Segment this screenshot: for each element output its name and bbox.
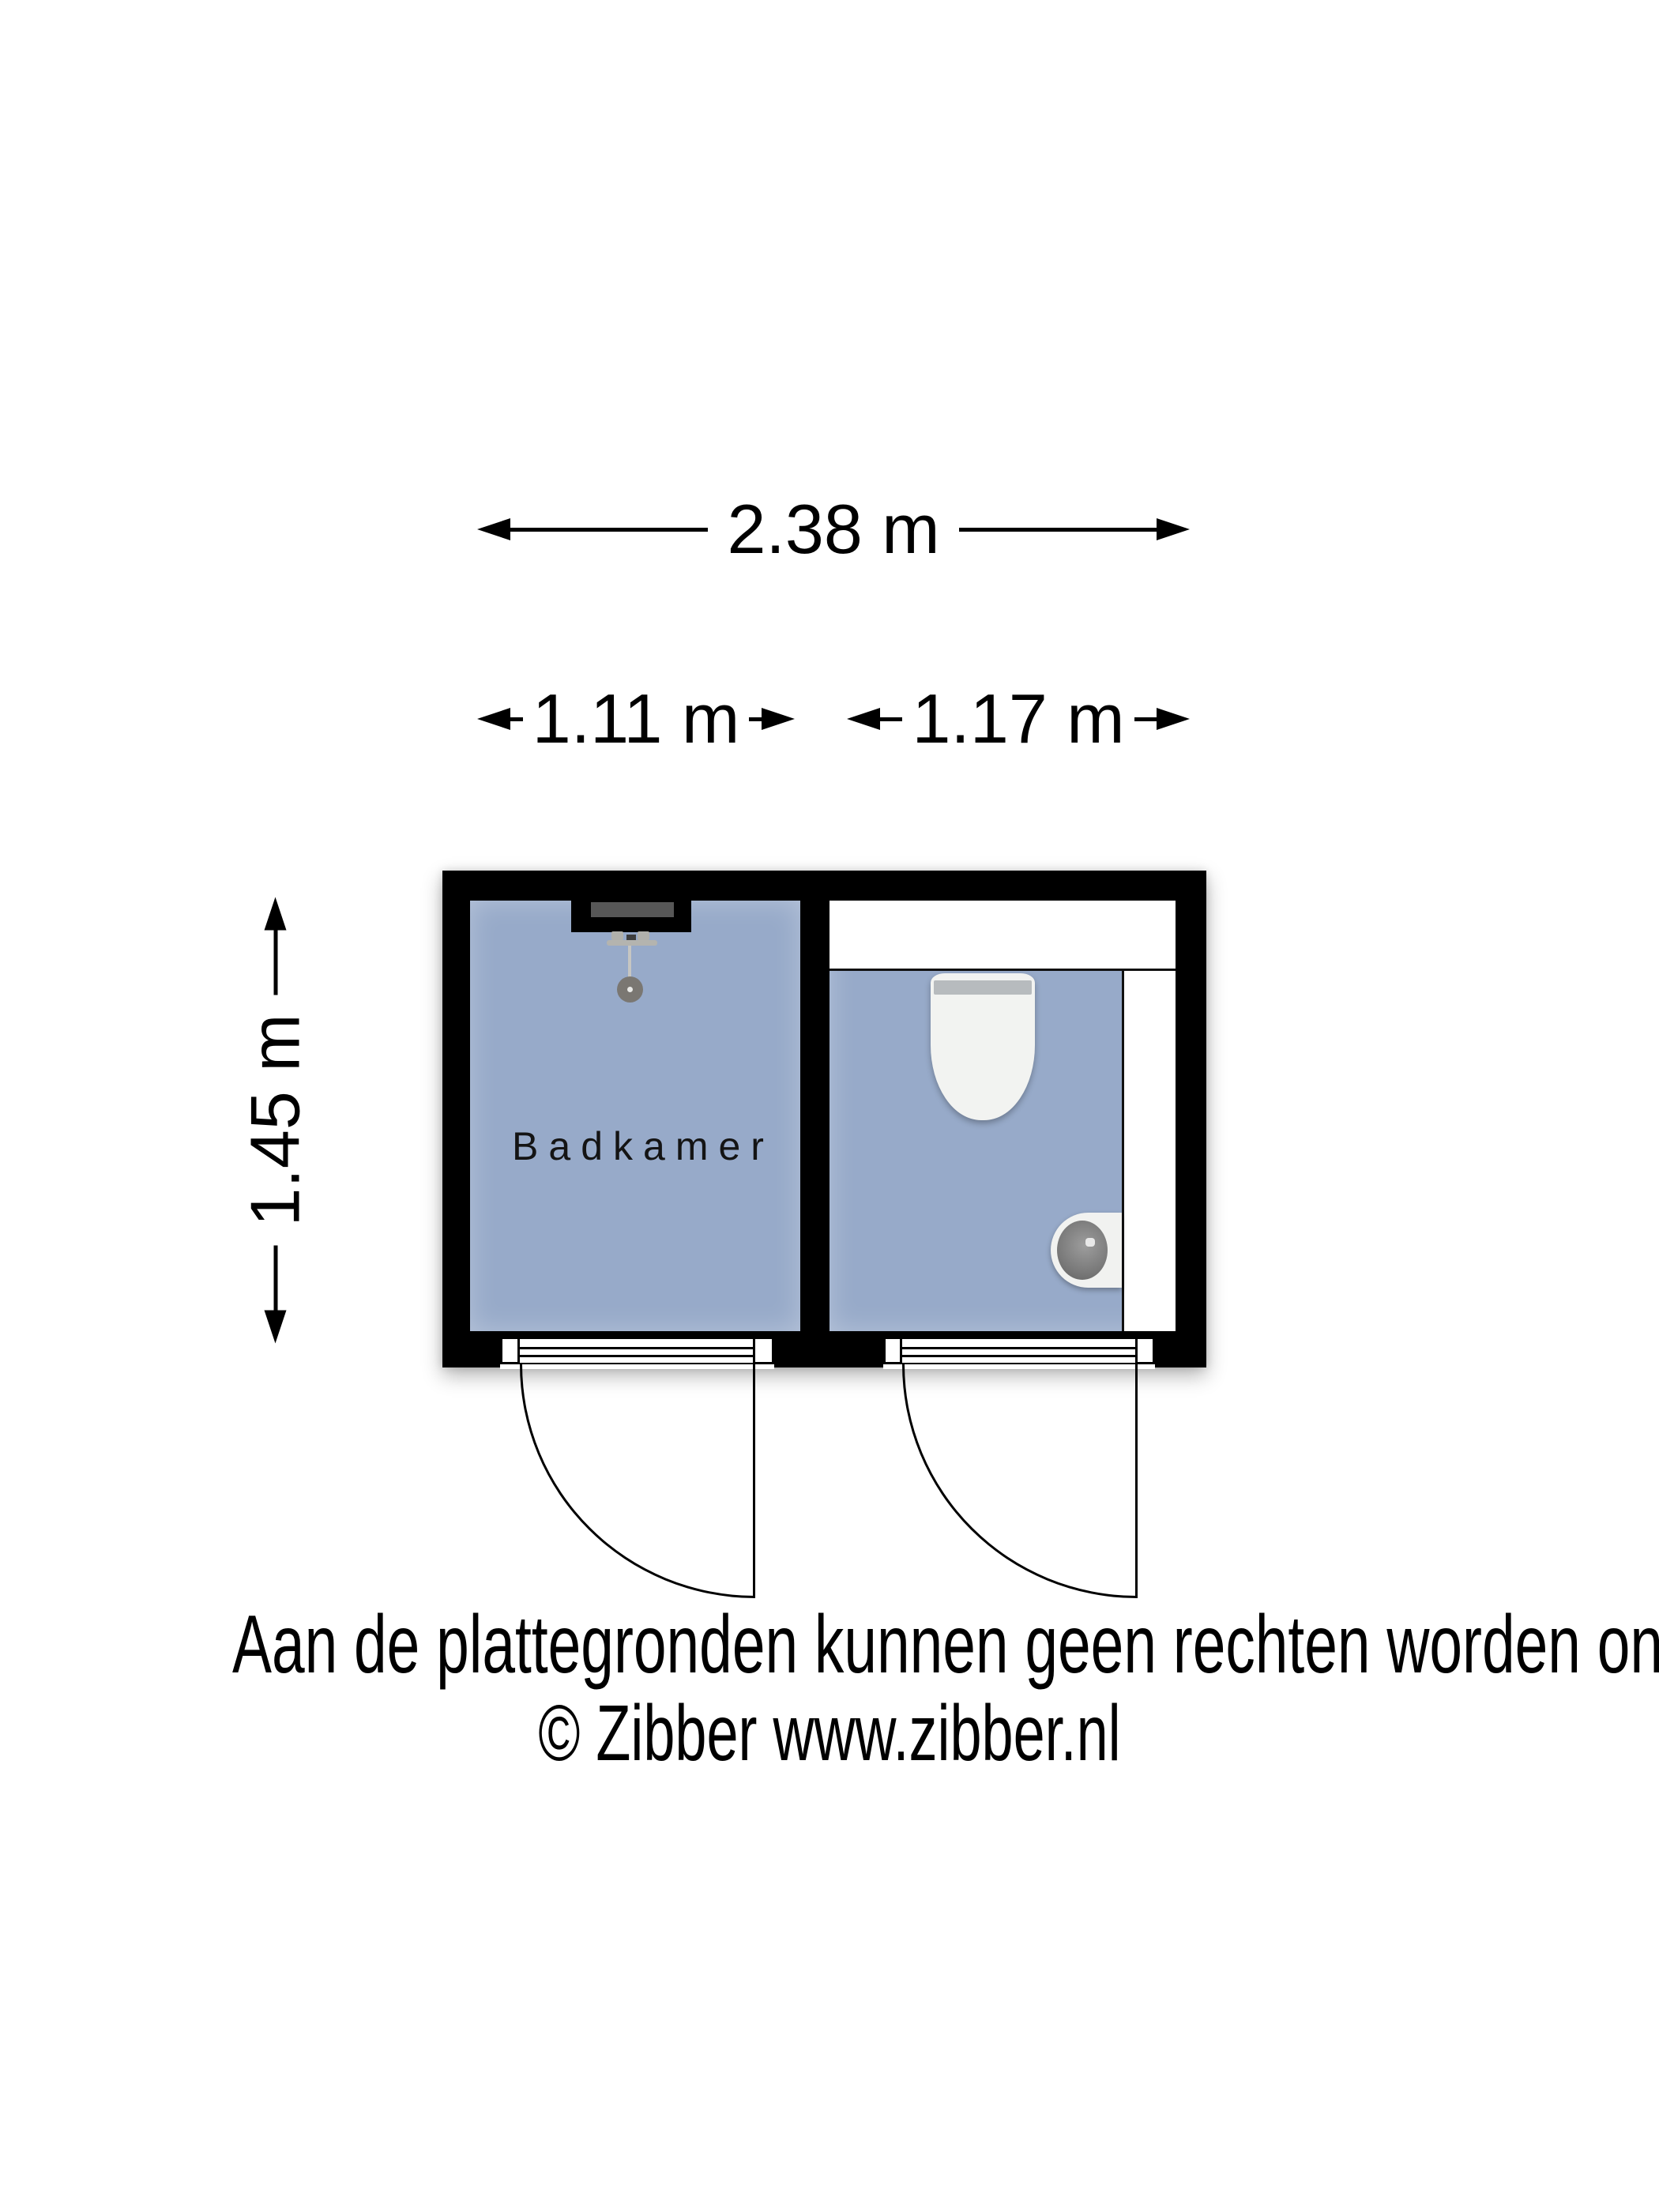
floorplan-drawing: Badkamer	[442, 871, 1206, 1367]
toilet-icon	[931, 973, 1035, 1120]
arrow-left-icon	[477, 708, 510, 730]
door-jamb	[500, 1337, 520, 1364]
basin-bowl	[1057, 1221, 1108, 1280]
dimension-line	[959, 528, 1157, 532]
dimension-line	[273, 1246, 277, 1311]
toilet-door-swing-arc	[902, 1364, 1137, 1598]
dimension-line	[273, 931, 277, 995]
toilet-seat-hinge	[934, 980, 1032, 995]
footer: Aan de plattegronden kunnen geen rechten…	[0, 1601, 1659, 1776]
cistern-shelf	[829, 901, 1176, 971]
hand-basin-icon	[1051, 1213, 1122, 1288]
basin-drain	[1085, 1238, 1095, 1247]
arrow-down-icon	[265, 1311, 287, 1344]
dimension-line	[510, 717, 523, 721]
dimension-label-toilet: 1.17 m	[902, 683, 1134, 755]
arrow-left-icon	[847, 708, 880, 730]
door-jamb	[883, 1337, 902, 1364]
disclaimer-text: Aan de plattegronden kunnen geen rechten…	[232, 1601, 1427, 1689]
dimension-toilet-width: 1.17 m	[847, 683, 1190, 755]
bathroom-floor	[470, 901, 800, 1331]
shower-bar-icon	[607, 940, 657, 946]
dimension-line	[510, 528, 708, 532]
shower-tap-icon	[611, 931, 623, 940]
shower-head-center	[627, 987, 633, 992]
dimension-label-overall: 2.38 m	[708, 493, 958, 566]
dimension-label-depth: 1.45 m	[239, 995, 312, 1245]
duct-panel	[1122, 971, 1176, 1331]
shower-head-icon	[617, 976, 643, 1003]
shower-tap-icon	[638, 931, 649, 940]
arrow-right-icon	[1157, 708, 1190, 730]
copyright-text: © Zibber www.zibber.nl	[232, 1691, 1427, 1776]
door-jamb	[1135, 1337, 1155, 1364]
door-jamb	[753, 1337, 774, 1364]
arrow-right-icon	[1157, 518, 1190, 540]
dimension-line	[1134, 717, 1157, 721]
shower-niche-recess	[591, 902, 674, 917]
dimension-bathroom-width: 1.11 m	[477, 683, 795, 755]
floorplan-page: 2.38 m 1.11 m 1.17 m 1.45 m	[0, 0, 1659, 2212]
arrow-left-icon	[477, 518, 510, 540]
dimension-overall-width: 2.38 m	[477, 493, 1190, 566]
bathroom-label: Badkamer	[485, 1123, 801, 1169]
dimension-line	[880, 717, 902, 721]
bathroom-door-swing-arc	[520, 1364, 755, 1598]
arrow-right-icon	[762, 708, 795, 730]
dimension-depth: 1.45 m	[239, 897, 312, 1344]
dimension-label-bathroom: 1.11 m	[523, 683, 750, 755]
arrow-up-icon	[265, 897, 287, 931]
dimension-line	[749, 717, 762, 721]
